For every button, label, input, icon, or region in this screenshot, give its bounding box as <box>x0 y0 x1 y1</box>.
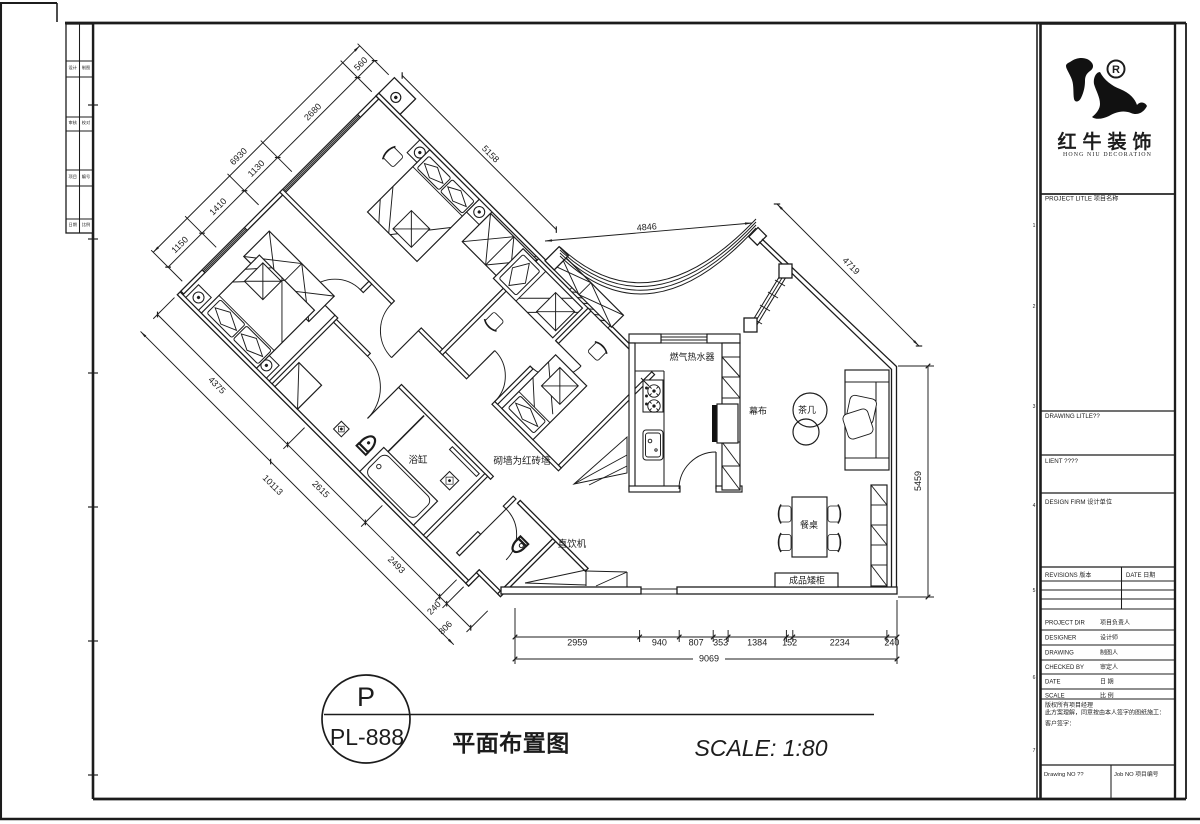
svg-text:审核: 审核 <box>69 119 78 126</box>
svg-text:此方案理解，同意按由本人签字的图纸施工：: 此方案理解，同意按由本人签字的图纸施工： <box>1045 709 1165 717</box>
svg-text:版权所有项目经理: 版权所有项目经理 <box>1045 701 1093 709</box>
svg-text:浴缸: 浴缸 <box>408 454 428 466</box>
svg-text:PL-888: PL-888 <box>330 724 404 750</box>
svg-text:2959: 2959 <box>567 638 587 648</box>
svg-text:设计师: 设计师 <box>1100 634 1118 642</box>
svg-text:HONG NIU DECORATION: HONG NIU DECORATION <box>1063 152 1152 158</box>
svg-text:2234: 2234 <box>830 638 850 648</box>
svg-text:PROJECT LITLE 项目名称: PROJECT LITLE 项目名称 <box>1045 195 1118 203</box>
svg-text:PROJECT DIR: PROJECT DIR <box>1045 621 1086 627</box>
svg-text:设计: 设计 <box>69 64 77 71</box>
svg-text:SCALE: 1:80: SCALE: 1:80 <box>695 735 828 761</box>
svg-text:日 期: 日 期 <box>1100 678 1114 686</box>
svg-text:Drawing NO ??: Drawing NO ?? <box>1044 772 1084 778</box>
svg-text:CHECKED BY: CHECKED BY <box>1045 665 1084 671</box>
svg-text:成品矮柜: 成品矮柜 <box>789 575 825 586</box>
svg-text:Job NO 项目编号: Job NO 项目编号 <box>1114 770 1159 778</box>
svg-text:审定人: 审定人 <box>1100 663 1118 671</box>
svg-text:制图人: 制图人 <box>1100 649 1118 657</box>
svg-text:152: 152 <box>782 638 797 648</box>
svg-text:DRAWING LITLE??: DRAWING LITLE?? <box>1045 413 1100 420</box>
svg-text:红牛装饰: 红牛装饰 <box>1057 130 1157 153</box>
svg-text:4: 4 <box>1033 503 1036 509</box>
svg-text:比例: 比例 <box>82 221 90 228</box>
svg-text:7: 7 <box>1033 748 1036 754</box>
svg-text:燃气热水器: 燃气热水器 <box>669 351 714 362</box>
svg-text:REVISIONS 版本: REVISIONS 版本 <box>1045 571 1091 579</box>
svg-text:幕布: 幕布 <box>749 405 767 416</box>
svg-text:5459: 5459 <box>913 471 923 491</box>
svg-text:制图: 制图 <box>82 64 90 71</box>
svg-text:校对: 校对 <box>82 119 90 126</box>
svg-text:DATE 日期: DATE 日期 <box>1126 571 1155 579</box>
svg-text:1: 1 <box>1033 223 1036 229</box>
svg-text:4846: 4846 <box>636 221 657 233</box>
svg-text:DESIGN FIRM 设计单位: DESIGN FIRM 设计单位 <box>1045 498 1112 506</box>
svg-text:砌墙为红砖墙: 砌墙为红砖墙 <box>493 455 551 467</box>
svg-text:茶几: 茶几 <box>798 404 816 415</box>
svg-text:6: 6 <box>1033 675 1036 681</box>
svg-text:LIENT ????: LIENT ???? <box>1045 458 1078 465</box>
svg-text:编号: 编号 <box>82 173 90 180</box>
svg-text:353: 353 <box>713 638 728 648</box>
svg-text:DATE: DATE <box>1045 680 1061 686</box>
svg-text:9069: 9069 <box>699 654 719 664</box>
svg-text:3: 3 <box>1033 404 1036 410</box>
svg-text:客户签字：: 客户签字： <box>1045 720 1075 728</box>
svg-text:直饮机: 直饮机 <box>558 538 587 550</box>
svg-text:餐桌: 餐桌 <box>800 519 818 530</box>
svg-text:R: R <box>1112 64 1120 76</box>
svg-text:平面布置图: 平面布置图 <box>452 730 570 756</box>
svg-text:DRAWING: DRAWING <box>1045 651 1074 657</box>
svg-text:5: 5 <box>1033 588 1036 594</box>
svg-text:DESIGNER: DESIGNER <box>1045 636 1077 642</box>
svg-text:1384: 1384 <box>747 638 767 648</box>
svg-text:P: P <box>357 682 375 712</box>
svg-text:项目负责人: 项目负责人 <box>1100 619 1130 627</box>
svg-text:940: 940 <box>652 638 667 648</box>
svg-text:2: 2 <box>1033 304 1036 310</box>
svg-text:807: 807 <box>689 638 704 648</box>
